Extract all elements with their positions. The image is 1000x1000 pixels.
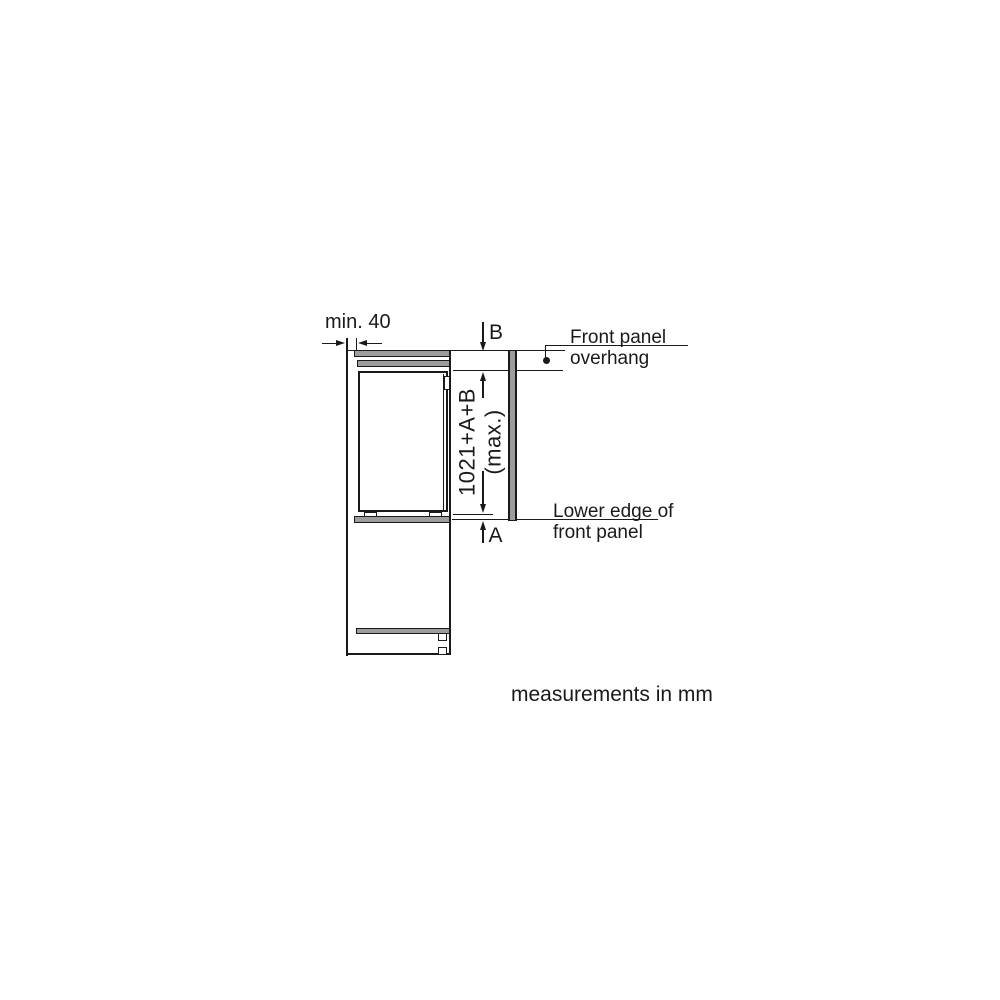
height-dim-label-value: 1021+A+B: [455, 357, 481, 527]
cabinet-bottom-line: [346, 653, 451, 655]
min-clearance-label: min. 40: [325, 311, 391, 334]
lower-edge-label-line2: front panel: [553, 522, 643, 543]
overhang-leader-dot: [543, 357, 550, 364]
installation-diagram: min. 40 B 1021+A+B (max.) A Front panel …: [0, 0, 1000, 1000]
dim-b-label: B: [489, 321, 503, 345]
door-hinge-block: [444, 376, 451, 390]
min40-arrow-left-shaft: [367, 343, 382, 344]
upper-trim-strip: [357, 360, 450, 367]
top-trim-strip: [354, 350, 451, 357]
dim-b-arrowhead: [480, 342, 486, 351]
lower-bracket-bottom: [438, 647, 447, 655]
min40-arrow-right-head: [336, 340, 345, 346]
front-panel-overhang-label-line1: Front panel: [570, 327, 666, 348]
dim-a-label: A: [489, 524, 503, 548]
appliance-door-front-line: [443, 374, 444, 510]
cabinet-front-line: [449, 350, 451, 655]
cabinet-left-wall-line: [346, 338, 348, 656]
dim-a-arrow-shaft: [482, 529, 483, 543]
niche-bottom-strip: [354, 516, 450, 523]
dim-b-arrow-shaft: [482, 322, 483, 342]
lower-edge-label-line1: Lower edge of: [553, 501, 673, 522]
front-panel-bar: [508, 350, 517, 521]
height-dim-label-max: (max.): [480, 357, 506, 527]
units-note: measurements in mm: [511, 683, 713, 707]
lower-compartment-strip: [356, 628, 450, 635]
front-panel-overhang-label-line2: overhang: [570, 348, 649, 369]
height-dim-label: 1021+A+B (max.): [455, 357, 506, 527]
appliance-body: [358, 371, 448, 512]
lower-bracket-upper: [438, 633, 447, 641]
